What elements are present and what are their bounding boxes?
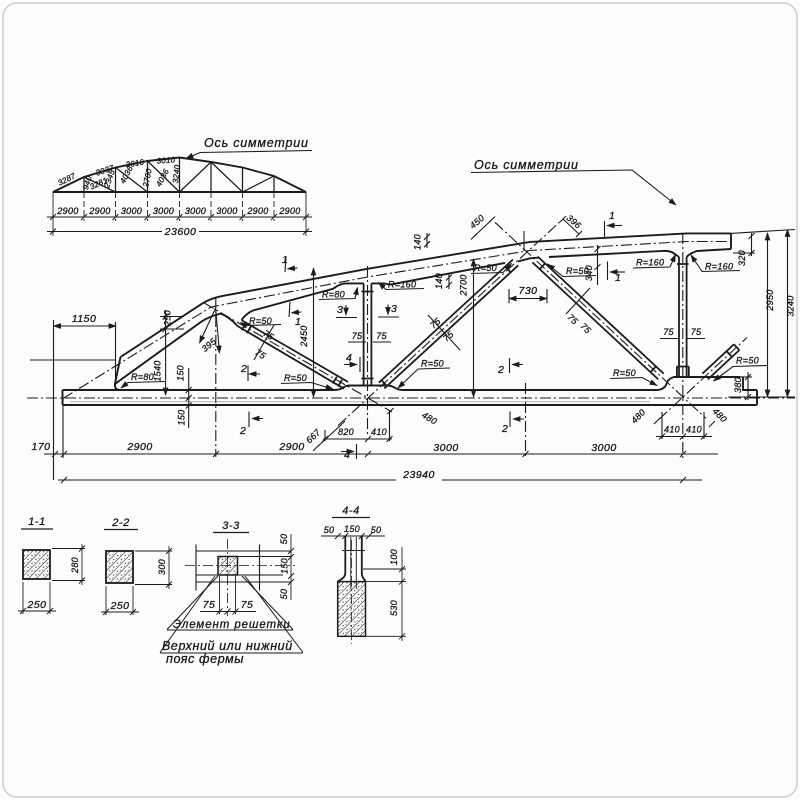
svg-text:R=80: R=80 <box>322 290 345 300</box>
svg-text:пояс фермы: пояс фермы <box>166 652 244 666</box>
svg-text:Ось симметрии: Ось симметрии <box>204 136 309 150</box>
svg-text:23600: 23600 <box>164 226 197 238</box>
svg-text:140: 140 <box>434 273 444 289</box>
svg-text:3000: 3000 <box>153 206 174 216</box>
svg-text:R=160: R=160 <box>636 258 664 268</box>
svg-text:75: 75 <box>376 331 387 341</box>
svg-text:1540: 1540 <box>153 360 163 381</box>
svg-text:3000: 3000 <box>121 206 142 216</box>
svg-text:2900: 2900 <box>246 206 268 216</box>
svg-text:75: 75 <box>578 321 593 336</box>
svg-text:R=160: R=160 <box>705 262 733 272</box>
svg-text:396: 396 <box>565 213 584 231</box>
svg-text:1150: 1150 <box>72 313 97 325</box>
svg-text:2: 2 <box>497 364 504 376</box>
svg-text:2900: 2900 <box>278 206 300 216</box>
svg-text:2: 2 <box>239 425 246 437</box>
svg-text:300: 300 <box>157 559 167 575</box>
svg-text:1: 1 <box>609 210 615 222</box>
svg-text:1: 1 <box>615 272 621 284</box>
svg-text:1: 1 <box>295 316 301 328</box>
svg-text:Элемент решетки: Элемент решетки <box>173 619 291 631</box>
svg-text:480: 480 <box>629 407 647 425</box>
svg-text:410: 410 <box>664 425 680 435</box>
svg-text:R=50: R=50 <box>736 356 759 366</box>
svg-text:3240: 3240 <box>171 164 182 184</box>
svg-text:2: 2 <box>240 363 247 375</box>
svg-text:Ось симметрии: Ось симметрии <box>474 158 579 172</box>
svg-text:2700: 2700 <box>141 168 154 189</box>
svg-text:R=50: R=50 <box>249 316 272 326</box>
svg-text:730: 730 <box>518 285 537 297</box>
svg-text:3: 3 <box>391 303 397 315</box>
svg-text:4: 4 <box>344 449 350 461</box>
svg-text:75: 75 <box>241 599 254 611</box>
svg-text:250: 250 <box>26 599 46 611</box>
svg-text:150: 150 <box>280 558 290 574</box>
svg-text:R=160: R=160 <box>388 280 416 290</box>
svg-text:1-1: 1-1 <box>28 516 45 528</box>
svg-text:150: 150 <box>177 410 187 426</box>
svg-text:480: 480 <box>420 410 439 427</box>
svg-text:75: 75 <box>691 327 702 337</box>
svg-text:1: 1 <box>282 254 288 266</box>
svg-text:2900: 2900 <box>56 206 78 216</box>
svg-text:380: 380 <box>733 377 743 393</box>
svg-text:3000: 3000 <box>433 442 458 454</box>
svg-text:23940: 23940 <box>402 469 435 481</box>
svg-text:3000: 3000 <box>591 442 616 454</box>
svg-text:150: 150 <box>176 365 186 381</box>
svg-text:R=50: R=50 <box>566 266 589 276</box>
svg-text:3000: 3000 <box>216 206 237 216</box>
svg-text:75: 75 <box>352 331 363 341</box>
svg-text:667: 667 <box>304 427 323 446</box>
svg-text:100: 100 <box>389 549 399 565</box>
svg-text:50: 50 <box>324 525 335 535</box>
svg-text:3: 3 <box>337 304 343 316</box>
svg-text:480: 480 <box>711 406 729 424</box>
svg-text:50: 50 <box>371 525 382 535</box>
svg-text:530: 530 <box>389 600 399 616</box>
svg-text:250: 250 <box>163 310 173 327</box>
svg-text:2: 2 <box>501 423 508 435</box>
svg-text:R=50: R=50 <box>613 368 636 378</box>
svg-text:R=50: R=50 <box>474 263 497 273</box>
svg-text:3010: 3010 <box>156 155 176 165</box>
svg-text:50: 50 <box>279 589 289 600</box>
svg-text:2950: 2950 <box>765 289 775 311</box>
svg-text:2900: 2900 <box>126 441 152 453</box>
svg-text:75: 75 <box>663 327 674 337</box>
svg-text:2900: 2900 <box>88 206 110 216</box>
svg-text:75: 75 <box>565 312 580 327</box>
svg-text:Верхний или нижний: Верхний или нижний <box>162 639 293 653</box>
svg-text:820: 820 <box>338 427 354 437</box>
svg-text:75: 75 <box>441 329 456 344</box>
svg-text:R=50: R=50 <box>284 373 307 383</box>
svg-text:R=50: R=50 <box>421 359 444 369</box>
svg-text:140: 140 <box>413 234 423 250</box>
svg-text:75: 75 <box>253 347 268 361</box>
svg-text:3-3: 3-3 <box>222 520 240 532</box>
svg-text:280: 280 <box>70 557 80 574</box>
svg-text:410: 410 <box>371 427 387 437</box>
svg-text:4-4: 4-4 <box>342 505 359 517</box>
svg-text:2700: 2700 <box>459 274 469 296</box>
svg-text:75: 75 <box>203 599 216 611</box>
svg-text:R=80: R=80 <box>131 372 154 382</box>
svg-text:2900: 2900 <box>278 441 304 453</box>
svg-text:50: 50 <box>279 534 289 545</box>
svg-text:250: 250 <box>109 600 129 612</box>
svg-text:2-2: 2-2 <box>111 517 129 529</box>
svg-text:320: 320 <box>737 250 747 266</box>
svg-text:4: 4 <box>346 352 352 364</box>
svg-text:3240: 3240 <box>786 295 796 316</box>
svg-text:170: 170 <box>31 441 50 453</box>
svg-text:2450: 2450 <box>299 325 309 347</box>
svg-text:150: 150 <box>344 524 360 534</box>
svg-text:410: 410 <box>686 425 702 435</box>
svg-text:3000: 3000 <box>185 206 206 216</box>
